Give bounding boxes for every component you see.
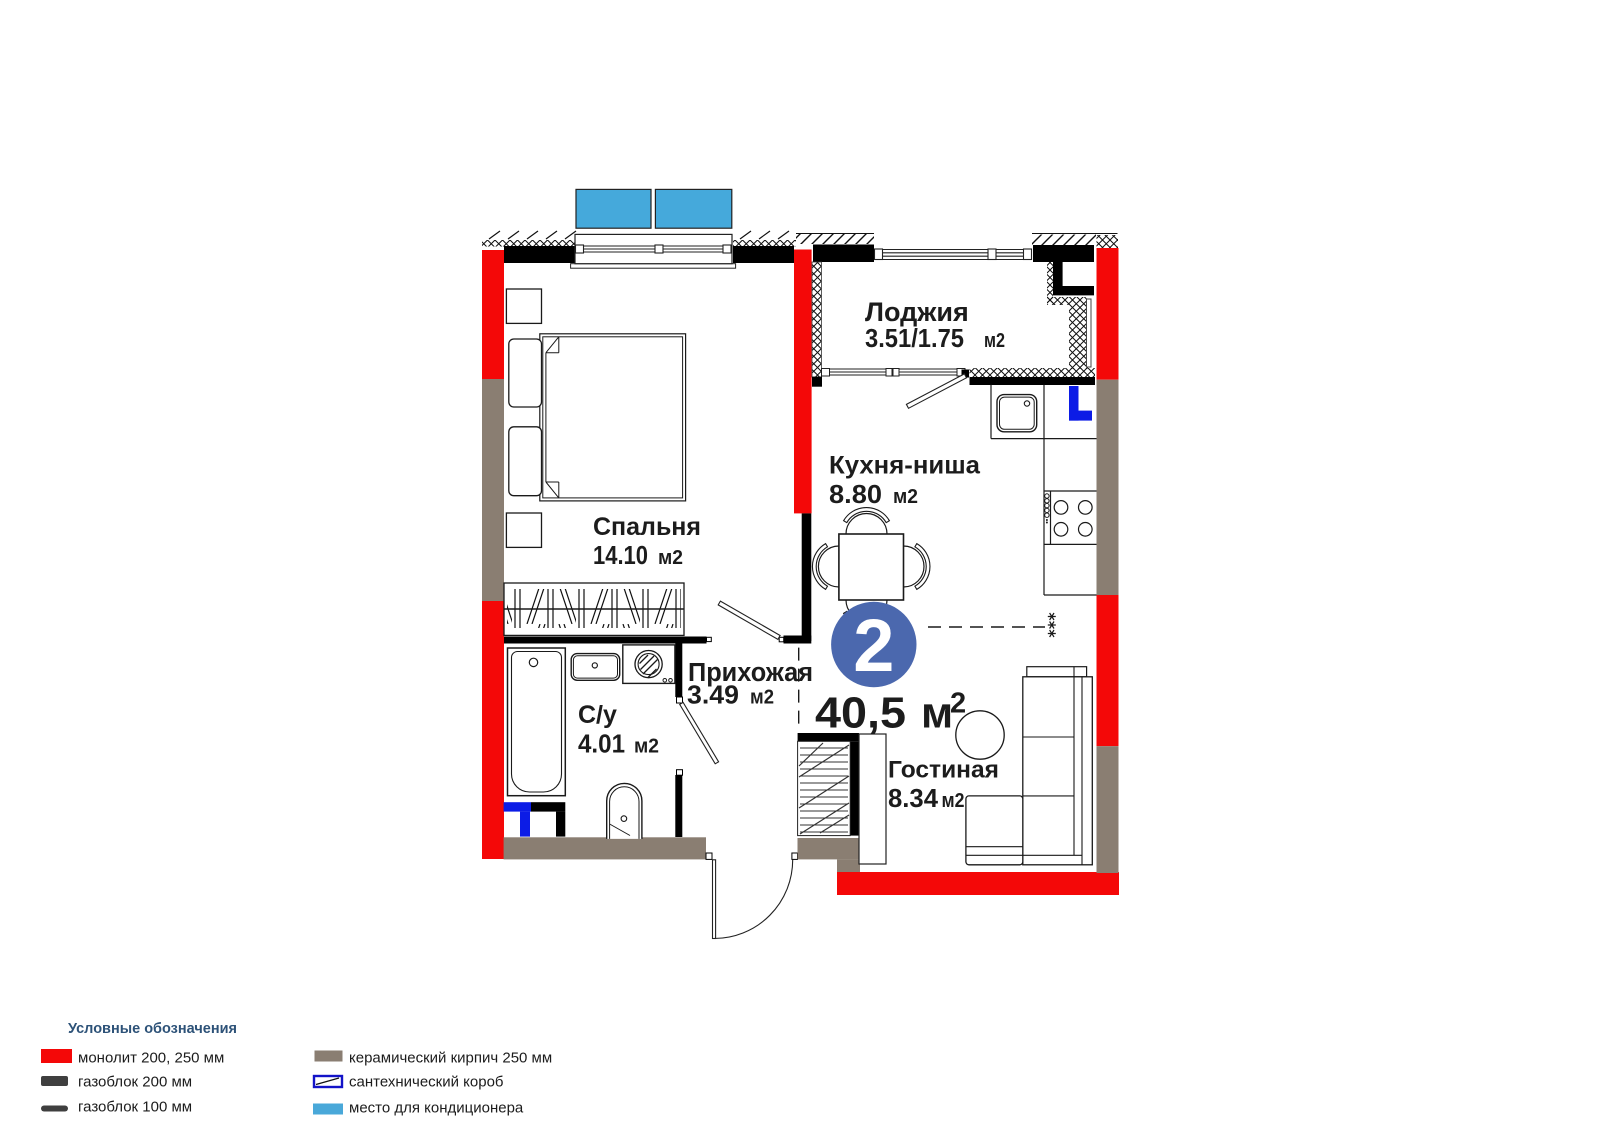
svg-text:газоблок 200 мм: газоблок 200 мм [78,1074,192,1091]
svg-text:4.01: 4.01 [578,728,625,758]
svg-text:монолит 200, 250 мм: монолит 200, 250 мм [78,1050,224,1067]
svg-text:3.49: 3.49 [687,680,739,710]
svg-text:С/у: С/у [578,701,617,729]
svg-text:Гостиная: Гостиная [888,757,999,784]
svg-text:Условные обозначения: Условные обозначения [68,1021,237,1037]
svg-text:Кухня-ниша: Кухня-ниша [829,452,981,480]
svg-text:м2: м2 [634,735,659,757]
svg-text:м2: м2 [893,486,918,508]
svg-text:сантехнический короб: сантехнический короб [349,1074,504,1091]
svg-text:Спальня: Спальня [593,513,701,541]
svg-text:3.51/1.75: 3.51/1.75 [865,323,964,353]
svg-text:м2: м2 [750,687,774,709]
svg-text:м2: м2 [984,330,1005,352]
svg-text:керамический кирпич 250 мм: керамический кирпич 250 мм [349,1050,552,1067]
svg-text:газоблок 100 мм: газоблок 100 мм [78,1099,192,1116]
svg-text:м2: м2 [658,547,683,569]
svg-text:м: м [921,690,953,738]
svg-text:40,5: 40,5 [815,690,906,738]
svg-text:м2: м2 [942,790,965,812]
svg-text:место для кондиционера: место для кондиционера [349,1100,524,1117]
svg-text:2: 2 [950,688,966,720]
svg-text:8.34: 8.34 [888,783,939,813]
svg-text:14.10: 14.10 [593,540,648,570]
svg-text:8.80: 8.80 [829,479,882,509]
svg-text:2: 2 [853,604,894,687]
